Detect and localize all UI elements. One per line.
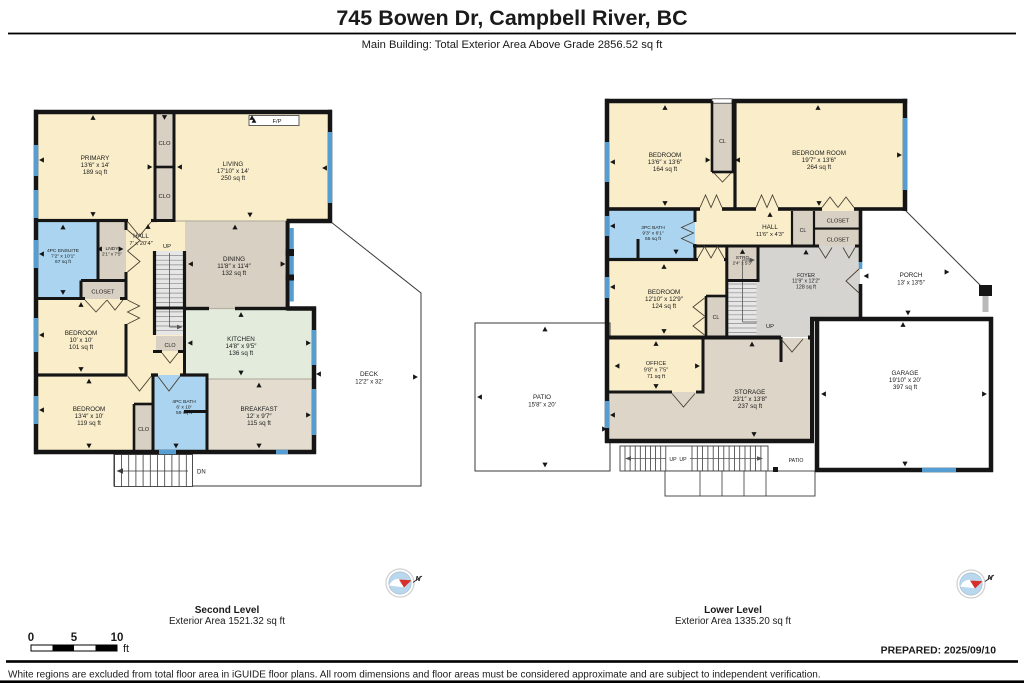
svg-text:2′1″ x 7′5″: 2′1″ x 7′5″ (102, 252, 122, 257)
svg-text:UP: UP (766, 324, 774, 330)
svg-text:White regions are excluded fro: White regions are excluded from total fl… (8, 670, 821, 681)
svg-text:DN: DN (197, 470, 206, 476)
svg-text:67 sq ft: 67 sq ft (55, 259, 72, 265)
svg-text:CL: CL (713, 315, 720, 321)
svg-text:PRIMARY: PRIMARY (81, 155, 110, 162)
svg-text:397 sq ft: 397 sq ft (893, 384, 917, 391)
svg-text:23′1″ x 13′8″: 23′1″ x 13′8″ (733, 396, 768, 403)
svg-text:19′7″ x 13′6″: 19′7″ x 13′6″ (802, 157, 837, 164)
svg-text:Exterior Area 1335.20 sq ft: Exterior Area 1335.20 sq ft (675, 616, 791, 627)
svg-text:10: 10 (111, 632, 124, 644)
svg-text:GARAGE: GARAGE (892, 370, 919, 377)
svg-text:19′10″ x 20′: 19′10″ x 20′ (889, 377, 922, 384)
svg-text:OFFICE: OFFICE (646, 361, 667, 367)
svg-text:Lower Level: Lower Level (704, 605, 762, 616)
svg-text:13′ x 13′5″: 13′ x 13′5″ (897, 281, 925, 287)
svg-text:BEDROOM: BEDROOM (73, 406, 106, 413)
svg-text:CL: CL (719, 139, 726, 145)
svg-text:BEDROOM: BEDROOM (648, 289, 681, 296)
svg-text:15′8″ x 20′: 15′8″ x 20′ (528, 403, 556, 409)
svg-text:BEDROOM: BEDROOM (649, 152, 682, 159)
svg-text:55 sq ft: 55 sq ft (645, 236, 662, 242)
svg-text:CLOSET: CLOSET (827, 219, 850, 225)
svg-text:9′3″ x 6′1″: 9′3″ x 6′1″ (642, 231, 664, 237)
svg-text:115 sq ft: 115 sq ft (247, 420, 271, 427)
svg-text:189 sq ft: 189 sq ft (83, 169, 107, 176)
svg-text:Main Building: Total Exterior: Main Building: Total Exterior Area Above… (362, 39, 664, 51)
svg-text:LIVING: LIVING (223, 161, 244, 168)
svg-text:11′6″ x 4′3″: 11′6″ x 4′3″ (756, 232, 784, 238)
svg-text:14′8″ x 9′5″: 14′8″ x 9′5″ (226, 343, 258, 350)
svg-text:CL: CL (800, 228, 807, 234)
svg-text:250 sq ft: 250 sq ft (221, 175, 245, 182)
svg-text:13′6″ x 13′6″: 13′6″ x 13′6″ (648, 159, 683, 166)
svg-text:CLO: CLO (159, 194, 171, 200)
svg-text:F/P: F/P (272, 119, 281, 125)
svg-text:10′ x 10′: 10′ x 10′ (69, 337, 93, 344)
svg-text:164 sq ft: 164 sq ft (653, 166, 677, 173)
svg-text:13′6″ x 14′: 13′6″ x 14′ (81, 162, 111, 169)
svg-text:11′8″ x 11′4″: 11′8″ x 11′4″ (217, 263, 251, 270)
svg-text:BEDROOM: BEDROOM (65, 330, 98, 337)
svg-text:CLO: CLO (159, 141, 171, 147)
svg-text:5: 5 (71, 632, 78, 644)
svg-text:PORCH: PORCH (900, 272, 923, 279)
svg-text:0: 0 (28, 632, 34, 644)
svg-text:Exterior Area 1521.32 sq ft: Exterior Area 1521.32 sq ft (169, 616, 285, 627)
svg-text:CLOSET: CLOSET (91, 290, 115, 296)
svg-text:CLO: CLO (164, 343, 175, 349)
svg-text:PATIO: PATIO (789, 458, 804, 464)
svg-text:13′4″ x 10′: 13′4″ x 10′ (75, 413, 105, 420)
svg-text:HALL: HALL (762, 224, 778, 231)
svg-text:128 sq ft: 128 sq ft (796, 284, 816, 290)
svg-text:6′ x 10′: 6′ x 10′ (176, 405, 191, 411)
svg-text:PREPARED: 2025/09/10: PREPARED: 2025/09/10 (881, 646, 997, 657)
svg-text:BREAKFAST: BREAKFAST (240, 406, 277, 413)
svg-text:17′10″ x 14′: 17′10″ x 14′ (217, 168, 250, 175)
svg-text:3PC BATH: 3PC BATH (641, 225, 665, 231)
svg-text:101 sq ft: 101 sq ft (69, 344, 93, 351)
svg-text:12′2″ x 32′: 12′2″ x 32′ (355, 380, 383, 386)
svg-text:237 sq ft: 237 sq ft (738, 403, 762, 410)
svg-text:71 sq ft: 71 sq ft (647, 374, 666, 380)
svg-text:Second Level: Second Level (195, 605, 260, 616)
svg-text:DECK: DECK (360, 371, 379, 378)
svg-text:STORAGE: STORAGE (735, 389, 766, 396)
svg-text:124 sq ft: 124 sq ft (652, 303, 676, 310)
svg-text:132 sq ft: 132 sq ft (222, 270, 246, 277)
svg-text:CLOSET: CLOSET (827, 238, 850, 244)
svg-text:KITCHEN: KITCHEN (227, 336, 255, 343)
svg-text:745 Bowen Dr, Campbell River,: 745 Bowen Dr, Campbell River, BC (336, 6, 687, 30)
svg-text:UP UP: UP UP (669, 457, 687, 463)
svg-text:12′10″ x 12′9″: 12′10″ x 12′9″ (645, 296, 684, 303)
svg-text:9′8″ x 7′5″: 9′8″ x 7′5″ (644, 367, 668, 373)
svg-text:264 sq ft: 264 sq ft (807, 164, 831, 171)
svg-text:119 sq ft: 119 sq ft (77, 420, 101, 427)
svg-text:12′ x 9′7″: 12′ x 9′7″ (246, 413, 272, 420)
svg-text:4PC ENSUITE: 4PC ENSUITE (47, 248, 80, 254)
svg-text:UP: UP (163, 244, 171, 250)
svg-text:136 sq ft: 136 sq ft (229, 350, 253, 357)
svg-text:ft: ft (123, 643, 129, 655)
svg-text:7′2″ x 10′1″: 7′2″ x 10′1″ (51, 254, 75, 260)
svg-text:CLO: CLO (138, 427, 149, 433)
svg-text:DINING: DINING (223, 256, 245, 263)
svg-text:BEDROOM ROOM: BEDROOM ROOM (792, 150, 846, 157)
svg-text:PATIO: PATIO (533, 394, 551, 401)
svg-text:4PC BATH: 4PC BATH (172, 399, 196, 405)
